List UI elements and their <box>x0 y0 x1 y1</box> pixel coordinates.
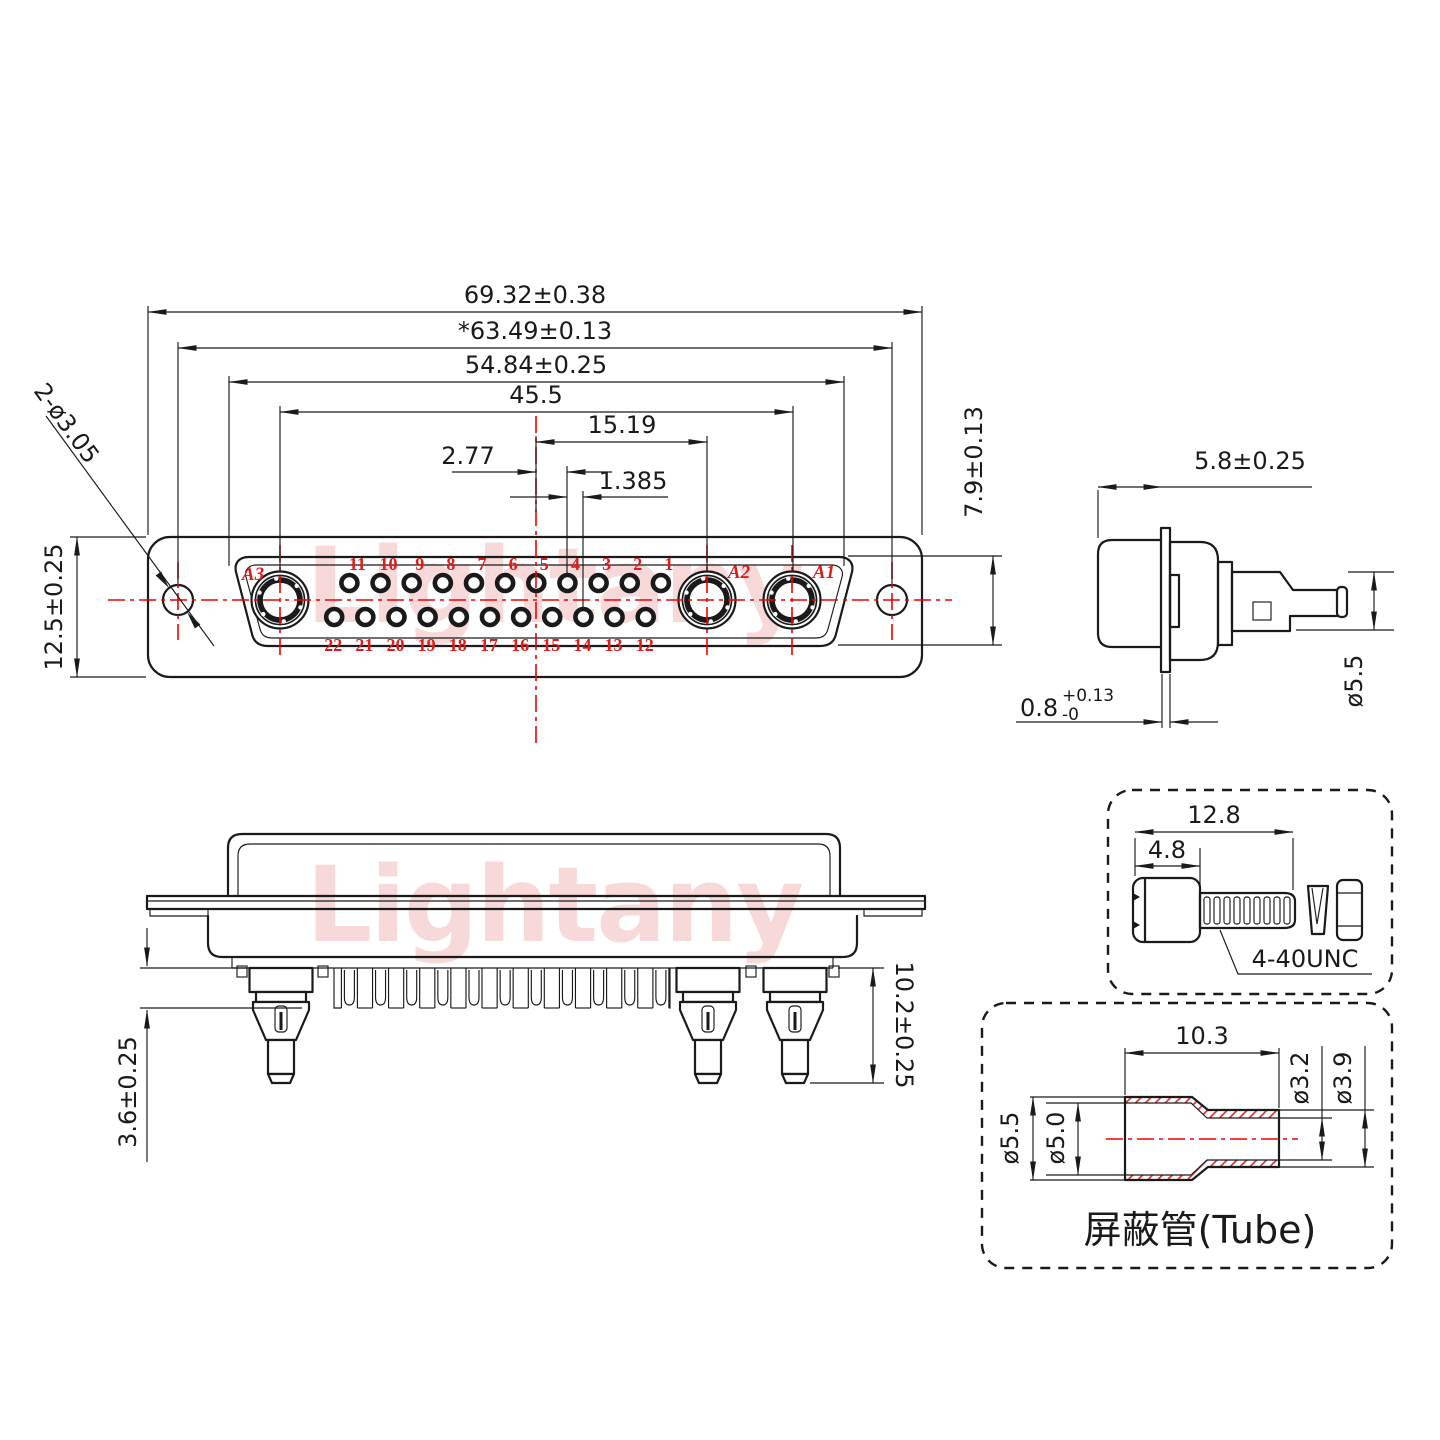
side-contact-top <box>1232 572 1337 590</box>
comb-left-cap <box>334 968 341 1008</box>
coax-contacts-section <box>250 968 827 1083</box>
comb-rib-walls <box>373 968 389 1008</box>
pin-contact <box>357 609 373 625</box>
dim-text-cutout-width: 54.84±0.25 <box>465 351 607 379</box>
contact-u <box>376 970 386 1005</box>
pin-number-label: 2 <box>633 554 642 574</box>
coax-tail <box>695 1040 721 1074</box>
pin-number-label: 22 <box>324 635 342 655</box>
side-view: 5.8±0.25 ø5.5 0.8 +0.13 -0 <box>1016 447 1394 728</box>
coax-lock-dot <box>794 619 798 623</box>
coax-lock-dot <box>298 605 302 609</box>
dim-text-tube-id-small: ø3.2 <box>1286 1052 1314 1105</box>
side-gasket <box>1170 575 1179 627</box>
dim-text-pin-length: 10.2±0.25 <box>890 962 918 1089</box>
dim-text-hole-span: *63.49±0.13 <box>458 317 612 345</box>
coax-lock-dot <box>725 605 729 609</box>
pin-contact <box>466 575 482 591</box>
comb-rib-walls <box>404 968 420 1008</box>
pin-contact <box>341 575 357 591</box>
side-flange-plate <box>1161 528 1170 672</box>
pin-number-label: 8 <box>446 554 455 574</box>
pin-contact <box>638 609 654 625</box>
pin-number-label: 10 <box>380 554 398 574</box>
contact-u <box>438 970 448 1005</box>
pin-contact <box>420 609 436 625</box>
thread-bar <box>1254 897 1260 924</box>
coax-lock-dot <box>294 584 298 588</box>
coax-contact-block <box>764 968 827 992</box>
screw-detail: 12.8 4.8 4-40UNC <box>1108 790 1392 994</box>
comb-rib-walls <box>466 968 482 1008</box>
coax-lock-dot <box>810 605 814 609</box>
coax-lock-dot <box>282 619 286 623</box>
pin-number-label: 7 <box>478 554 487 574</box>
pin-number-label: 1 <box>664 554 673 574</box>
coax-lock-dot <box>786 576 790 580</box>
coax-lock-dot <box>709 619 713 623</box>
contact-u <box>656 970 666 1005</box>
coax-lock-dot <box>261 612 265 616</box>
dim-text-flange-thickness: 0.8 <box>1020 694 1058 722</box>
technical-drawing-page: Lightany Lightany 1110987654321222120191… <box>0 0 1440 1440</box>
comb-rib-walls <box>559 968 575 1008</box>
side-front-shell <box>1098 540 1162 647</box>
side-contact-bottom <box>1232 616 1337 631</box>
tube-wall-top-hatch <box>1125 1097 1279 1118</box>
thread-bar <box>1264 897 1270 924</box>
dim-text-pin-to-coax: 15.19 <box>588 411 657 439</box>
pin-number-label: 12 <box>636 635 654 655</box>
coax-pin-label: A1 <box>812 562 835 583</box>
screw-threads <box>1204 897 1290 924</box>
drawing-canvas: Lightany Lightany 1110987654321222120191… <box>0 0 1440 1440</box>
dim-text-front-depth: 5.8±0.25 <box>1194 447 1306 475</box>
dim-text-barrel-dia: ø5.5 <box>1340 655 1368 708</box>
coax-tail <box>782 1040 808 1074</box>
pin-contact <box>575 609 591 625</box>
thread-bar <box>1284 897 1290 924</box>
dim-text-standoff: 3.6±0.25 <box>114 1036 142 1148</box>
pin-contact <box>591 575 607 591</box>
pin-contact <box>497 575 513 591</box>
coax-contact-block <box>677 968 740 992</box>
dim-text-pitch: 2.77 <box>441 442 494 470</box>
coax-lock-dot <box>274 576 278 580</box>
comb-rib-walls <box>622 968 638 1008</box>
pin-contact <box>326 609 342 625</box>
barrel-piece <box>1337 880 1362 940</box>
pin-contact <box>559 575 575 591</box>
thread-bar <box>1204 897 1210 924</box>
wedge-piece <box>1308 886 1328 934</box>
coax-lock-dot <box>769 590 773 594</box>
thread-bar <box>1274 897 1280 924</box>
coax-lock-dot <box>701 576 705 580</box>
contact-u <box>500 970 510 1005</box>
coax-tail-tip <box>268 1074 294 1083</box>
side-contact-tip <box>1337 587 1347 617</box>
pin-number-label: 9 <box>415 554 424 574</box>
pin-number-label: 17 <box>480 635 498 655</box>
thread-spec-label: 4-40UNC <box>1252 945 1359 973</box>
coax-lock-dot <box>688 612 692 616</box>
dim-text-screw-total: 12.8 <box>1187 801 1240 829</box>
coax-contact-neck <box>770 992 820 1002</box>
contact-comb <box>334 968 670 1008</box>
pin-number-label: 13 <box>605 635 623 655</box>
pin-contact <box>435 575 451 591</box>
dim-text-row-offset: 1.385 <box>599 467 668 495</box>
pin-number-label: 15 <box>542 635 560 655</box>
contact-u <box>344 970 354 1005</box>
pin-contact <box>653 575 669 591</box>
pin-number-label: 5 <box>540 554 549 574</box>
coax-tail <box>268 1040 294 1074</box>
comb-rib-walls <box>497 968 513 1008</box>
screw-head <box>1133 878 1200 942</box>
contact-u <box>625 970 635 1005</box>
thread-bar <box>1214 897 1220 924</box>
pin-contact <box>389 609 405 625</box>
pin-contact <box>544 609 560 625</box>
dim-text-tube-id-large: ø5.0 <box>1042 1112 1070 1165</box>
contact-u <box>469 970 479 1005</box>
comb-rib-walls <box>435 968 451 1008</box>
dim-text-coax-span: 45.5 <box>509 381 562 409</box>
dim-text-tol-plus: +0.13 <box>1062 686 1114 706</box>
pin-contact <box>451 609 467 625</box>
tube-wall-bottom-hatch <box>1125 1160 1279 1180</box>
dim-text-tol-minus: -0 <box>1062 705 1079 725</box>
thread-bar <box>1224 897 1230 924</box>
dim-text-body-height: 12.5±0.25 <box>40 544 68 671</box>
dim-text-screw-head: 4.8 <box>1148 836 1186 864</box>
thread-bar <box>1234 897 1240 924</box>
side-step-ring <box>1218 562 1232 645</box>
contact-u <box>407 970 417 1005</box>
comb-rib-walls <box>341 968 357 1008</box>
coax-tail-tip <box>782 1074 808 1083</box>
barrel-bands <box>1337 893 1362 926</box>
coax-contact-block <box>250 968 313 992</box>
coax-pin-label: A3 <box>241 564 264 585</box>
tube-label: 屏蔽管(Tube) <box>1084 1208 1317 1252</box>
pin-contact <box>404 575 420 591</box>
pin-number-label: 18 <box>449 635 467 655</box>
dim-text-tube-od-small: ø3.9 <box>1329 1052 1357 1105</box>
pin-number-label: 3 <box>602 554 611 574</box>
contact-u <box>594 970 604 1005</box>
pin-number-label: 21 <box>355 635 373 655</box>
wedge-groove <box>1312 888 1323 924</box>
pin-contact <box>622 575 638 591</box>
coax-lock-dot <box>257 590 261 594</box>
contact-u <box>531 970 541 1005</box>
contact-u <box>562 970 572 1005</box>
comb-rib-walls <box>528 968 544 1008</box>
coax-contact-neck <box>683 992 733 1002</box>
pin-number-label: 4 <box>571 554 580 574</box>
dim-text-cutout-height: 7.9±0.13 <box>960 406 988 518</box>
coax-pin-label: A2 <box>727 562 751 583</box>
thread-bar <box>1244 897 1250 924</box>
coax-lock-dot <box>806 584 810 588</box>
side-rear-body <box>1170 542 1218 660</box>
tube-detail: ø5.5 ø5.0 10.3 ø3.2 ø3.9 屏蔽管(Tube) <box>982 1003 1392 1268</box>
comb-rib-walls <box>653 968 669 1008</box>
dim-text-tube-od-large: ø5.5 <box>996 1112 1024 1165</box>
pin-number-label: 14 <box>573 635 591 655</box>
dim-text-mount-holes: 2-ø3.05 <box>28 378 105 469</box>
side-contact-window <box>1253 602 1271 620</box>
pin-contact <box>373 575 389 591</box>
pin-contact <box>607 609 623 625</box>
coax-contact-neck <box>256 992 306 1002</box>
pin-contact <box>482 609 498 625</box>
dim-text-overall-width: 69.32±0.38 <box>464 281 606 309</box>
pin-number-label: 16 <box>511 635 529 655</box>
dim-text-tube-length: 10.3 <box>1175 1022 1228 1050</box>
pin-number-label: 20 <box>387 635 405 655</box>
pin-number-label: 11 <box>349 554 366 574</box>
pin-contact <box>513 609 529 625</box>
comb-rib-walls <box>591 968 607 1008</box>
pin-number-label: 19 <box>418 635 436 655</box>
coax-lock-dot <box>773 612 777 616</box>
watermark-section: Lightany <box>306 844 802 966</box>
coax-lock-dot <box>721 584 725 588</box>
coax-tail-tip <box>695 1074 721 1083</box>
coax-lock-dot <box>684 590 688 594</box>
pin-number-label: 6 <box>509 554 518 574</box>
